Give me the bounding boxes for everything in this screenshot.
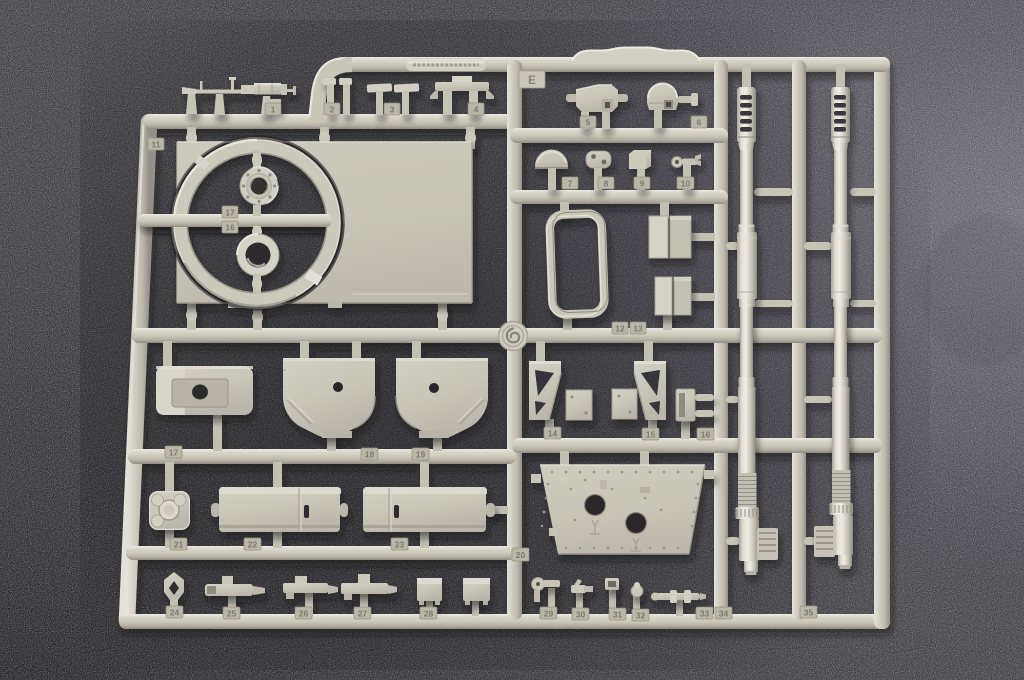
svg-text:33: 33 <box>700 609 710 619</box>
svg-text:35: 35 <box>804 608 814 618</box>
svg-text:22: 22 <box>248 540 258 550</box>
svg-text:29: 29 <box>544 609 554 619</box>
svg-text:6: 6 <box>697 118 702 128</box>
svg-text:16: 16 <box>701 430 711 440</box>
svg-text:3: 3 <box>390 105 395 115</box>
svg-text:23: 23 <box>395 540 405 550</box>
svg-text:30: 30 <box>576 610 586 620</box>
svg-text:32: 32 <box>636 611 646 621</box>
svg-text:14: 14 <box>548 429 558 439</box>
svg-text:28: 28 <box>424 609 434 619</box>
svg-text:18: 18 <box>365 450 375 460</box>
svg-text:10: 10 <box>681 179 691 189</box>
svg-text:26: 26 <box>299 609 309 619</box>
svg-text:12: 12 <box>615 324 625 334</box>
svg-text:9: 9 <box>640 179 645 189</box>
svg-text:34: 34 <box>719 609 729 619</box>
svg-text:31: 31 <box>613 610 623 620</box>
svg-text:2: 2 <box>330 105 335 115</box>
svg-text:8: 8 <box>604 179 609 189</box>
svg-text:5: 5 <box>586 118 591 128</box>
svg-text:11: 11 <box>152 140 161 150</box>
svg-text:7: 7 <box>568 179 573 189</box>
svg-text:1: 1 <box>271 105 276 115</box>
svg-text:21: 21 <box>174 540 184 550</box>
svg-text:25: 25 <box>227 609 237 619</box>
svg-text:15: 15 <box>646 430 656 440</box>
svg-text:19: 19 <box>416 450 426 460</box>
svg-text:20: 20 <box>516 550 526 560</box>
svg-text:24: 24 <box>170 608 180 618</box>
svg-text:E: E <box>528 73 536 87</box>
svg-text:17: 17 <box>169 448 179 458</box>
svg-text:13: 13 <box>633 324 643 334</box>
svg-text:17: 17 <box>225 208 235 218</box>
svg-text:27: 27 <box>358 609 368 619</box>
svg-text:4: 4 <box>474 105 479 115</box>
svg-text:16: 16 <box>225 223 235 233</box>
